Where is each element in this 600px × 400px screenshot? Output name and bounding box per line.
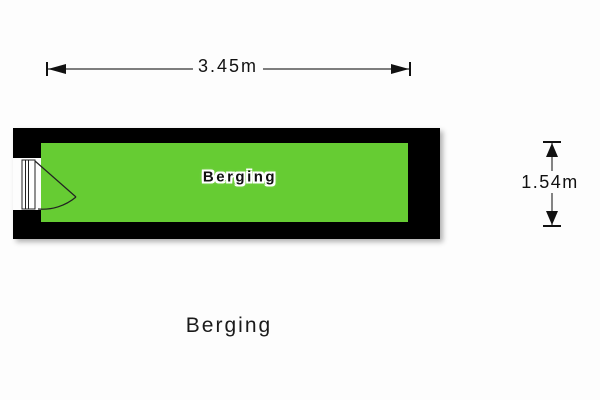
floorplan-canvas: 3.45m Berging 1.54m Berging	[0, 0, 600, 400]
plan-title: Berging	[186, 314, 272, 338]
door-swing-icon	[13, 158, 83, 213]
room-label: Berging	[203, 169, 277, 186]
width-dimension-label: 3.45m	[193, 56, 263, 76]
room-berging: Berging	[13, 128, 440, 239]
height-dimension-label: 1.54m	[519, 171, 581, 193]
